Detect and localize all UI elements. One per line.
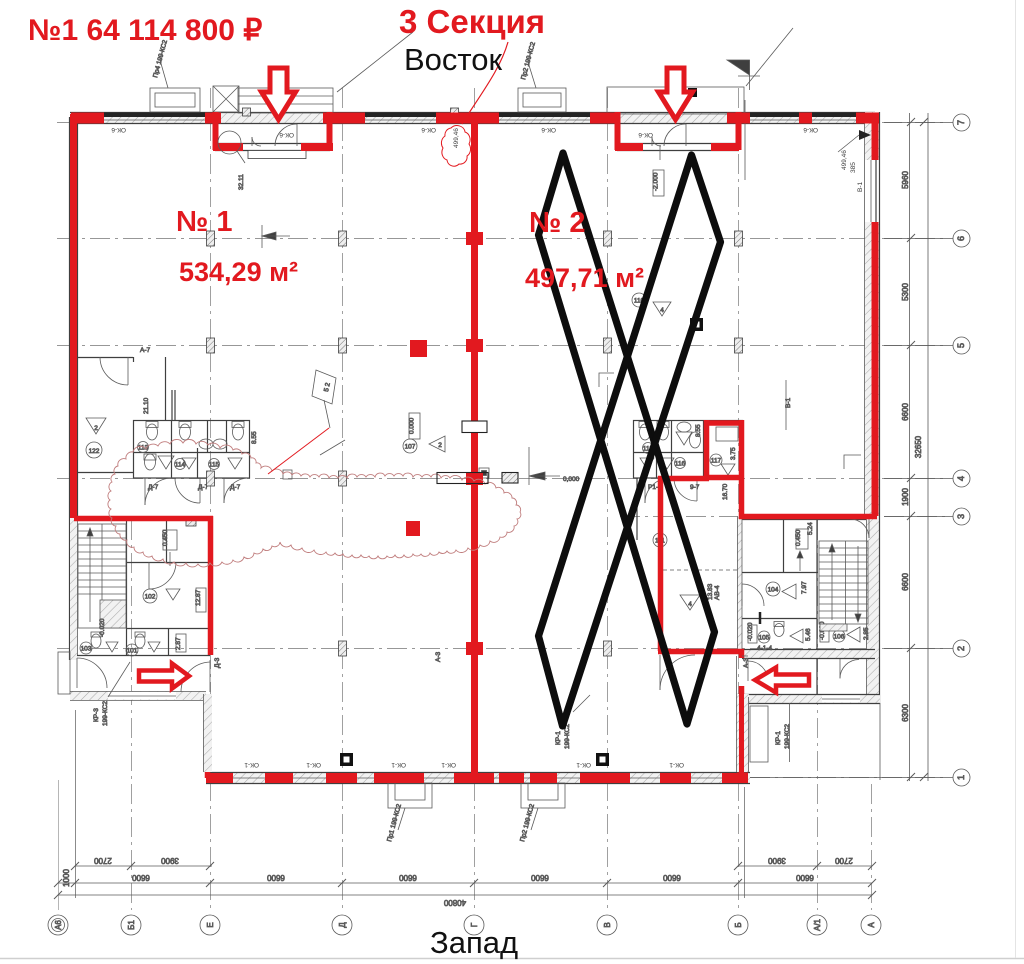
svg-text:8.55: 8.55 [251,431,258,444]
svg-text:199-КС2: 199-КС2 [784,724,791,749]
svg-text:8.55: 8.55 [695,424,702,437]
svg-text:ОК-1: ОК-1 [669,761,684,768]
svg-text:6600: 6600 [399,873,417,882]
svg-text:5.24: 5.24 [807,522,814,535]
svg-text:3.75: 3.75 [730,447,737,460]
svg-text:105: 105 [759,635,770,642]
svg-text:3: 3 [956,514,966,519]
svg-text:40800: 40800 [443,898,466,907]
svg-text:А-3: А-3 [743,658,750,669]
svg-text:117: 117 [711,458,722,465]
svg-text:122: 122 [89,448,100,455]
svg-text:2700: 2700 [835,856,853,865]
svg-text:А-3: А-3 [435,652,442,663]
svg-text:Д-3: Д-3 [214,657,221,668]
svg-text:2.85: 2.85 [863,627,870,640]
svg-text:0,000: 0,000 [563,476,580,483]
svg-text:КР-3: КР-3 [93,708,100,722]
svg-text:5300: 5300 [901,283,910,301]
svg-text:0.450: 0.450 [795,529,802,546]
svg-text:ОК-6: ОК-6 [638,131,653,138]
svg-text:4: 4 [688,601,692,608]
svg-text:5960: 5960 [901,171,910,189]
svg-text:534,29 м²: 534,29 м² [179,257,298,287]
svg-text:101: 101 [127,648,138,655]
svg-text:6: 6 [956,236,966,241]
svg-text:6600: 6600 [663,873,681,882]
svg-text:6600: 6600 [531,873,549,882]
svg-text:3 Секция: 3 Секция [399,3,545,40]
svg-text:2: 2 [94,425,98,432]
svg-text:499,46: 499,46 [841,150,848,170]
svg-text:16.70: 16.70 [722,483,729,500]
svg-text:В: В [603,922,612,927]
svg-text:6600: 6600 [267,873,285,882]
svg-text:ОК-1: ОК-1 [576,761,591,768]
svg-text:А/1: А/1 [813,918,822,931]
svg-text:32650: 32650 [914,435,923,458]
svg-text:ОК-6: ОК-6 [111,126,126,133]
svg-text:Д-7: Д-7 [148,484,159,491]
svg-text:4-1-4: 4-1-4 [757,645,773,652]
svg-text:2.87: 2.87 [175,637,182,650]
svg-text:499,46: 499,46 [453,128,460,148]
svg-text:7.97: 7.97 [801,581,808,594]
svg-text:106: 106 [834,634,845,641]
svg-text:2700: 2700 [94,856,112,865]
svg-text:115: 115 [209,462,220,469]
svg-text:ОК-6: ОК-6 [279,131,294,138]
svg-text:1000: 1000 [62,869,71,887]
svg-text:103: 103 [81,646,92,653]
svg-text:3900: 3900 [161,856,179,865]
svg-text:116: 116 [675,461,686,468]
svg-text:114: 114 [175,462,186,469]
svg-text:13.83: 13.83 [707,583,714,600]
svg-text:А6: А6 [54,920,63,930]
svg-text:-0.020: -0.020 [747,622,754,641]
svg-text:-2.000: -2.000 [653,172,660,191]
svg-text:4: 4 [660,307,664,314]
svg-text:6300: 6300 [901,704,910,722]
svg-text:Д-7: Д-7 [230,484,241,491]
svg-text:Восток: Восток [404,42,503,77]
svg-text:2: 2 [438,442,442,449]
svg-text:3900: 3900 [768,856,786,865]
svg-text:0.450: 0.450 [162,529,169,546]
svg-text:6600: 6600 [796,873,814,882]
svg-text:4: 4 [956,476,966,481]
svg-text:ОК-6: ОК-6 [541,126,556,133]
svg-text:КР-1: КР-1 [555,731,562,745]
svg-text:5: 5 [956,343,966,348]
svg-text:ОК-6: ОК-6 [803,126,818,133]
svg-text:Е: Е [206,922,215,927]
svg-text:497,71 м²: 497,71 м² [525,263,644,293]
svg-text:А-7: А-7 [140,347,151,354]
svg-text:ОК-1: ОК-1 [244,761,259,768]
svg-text:32.11: 32.11 [238,174,245,190]
svg-text:1: 1 [956,775,966,780]
svg-text:385: 385 [850,162,857,173]
svg-text:ОК-6: ОК-6 [421,126,436,133]
svg-text:№ 1: № 1 [176,206,233,238]
svg-text:ОК-1: ОК-1 [441,761,456,768]
svg-text:7: 7 [956,120,966,125]
svg-text:1900: 1900 [901,488,910,506]
svg-text:КР-1: КР-1 [775,731,782,745]
svg-text:9-7: 9-7 [690,484,700,491]
svg-text:Б1: Б1 [127,920,136,930]
svg-text:ОК-1: ОК-1 [306,761,321,768]
svg-text:-0.020: -0.020 [99,618,106,637]
svg-text:6600: 6600 [132,873,150,882]
svg-text:АВ-4: АВ-4 [714,585,721,600]
svg-text:102: 102 [145,594,156,601]
svg-text:2: 2 [956,646,966,651]
svg-text:Д: Д [338,922,347,928]
svg-text:104: 104 [768,587,779,594]
svg-text:199-КС2: 199-КС2 [102,701,109,726]
svg-text:12.87: 12.87 [195,589,202,606]
svg-text:№ 2: № 2 [529,207,586,239]
svg-text:Запад: Запад [430,925,518,960]
svg-text:6600: 6600 [901,573,910,591]
svg-text:107: 107 [405,444,416,451]
svg-text:21.10: 21.10 [143,397,150,414]
svg-text:В-1: В-1 [857,182,864,193]
svg-text:№1 64 114 800 ₽: №1 64 114 800 ₽ [28,14,262,47]
svg-text:А: А [867,922,876,928]
svg-text:Б: Б [734,922,743,927]
svg-text:6600: 6600 [901,403,910,421]
svg-text:5.46: 5.46 [805,628,812,641]
svg-text:0.000: 0.000 [409,417,416,434]
svg-text:ОК-1: ОК-1 [391,761,406,768]
